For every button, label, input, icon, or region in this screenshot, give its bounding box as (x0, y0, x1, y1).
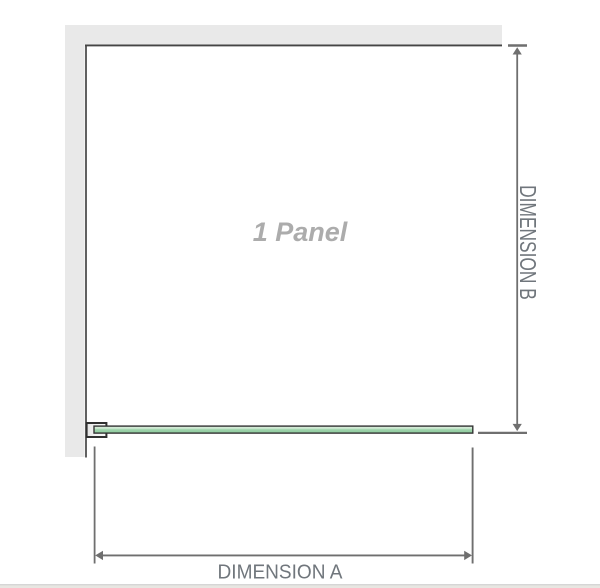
svg-text:DIMENSION A: DIMENSION A (218, 561, 344, 584)
svg-text:1 Panel: 1 Panel (253, 217, 348, 247)
svg-text:DIMENSION B: DIMENSION B (514, 185, 539, 300)
